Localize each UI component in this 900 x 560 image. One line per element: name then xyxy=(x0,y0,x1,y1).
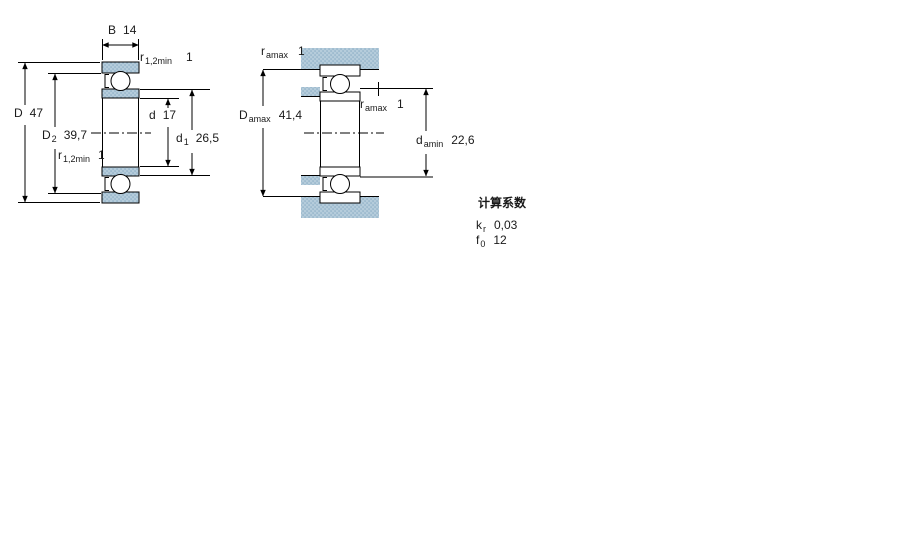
dim-label-Da-max: Damax41,4 xyxy=(239,109,302,123)
calculation-factors-title-text: 计算系数 xyxy=(478,196,526,210)
dim-subscript: amax xyxy=(249,114,271,124)
dim-symbol: D xyxy=(14,106,23,120)
dim-label-da-min: damin22,6 xyxy=(416,134,475,148)
dim-subscript: amax xyxy=(365,103,387,113)
right-mounting-figure xyxy=(263,48,433,218)
dim-value: 26,5 xyxy=(196,131,219,145)
dim-symbol: r xyxy=(140,50,144,64)
dim-label-d1: d126,5 xyxy=(176,132,219,146)
dim-value: 41,4 xyxy=(279,108,302,122)
dim-subscript: 1,2min xyxy=(145,56,172,66)
dim-subscript: amin xyxy=(424,139,444,149)
dim-label-chamfer-r-top: r1,2min1 xyxy=(140,51,193,65)
calculation-factors-title: 计算系数 xyxy=(478,197,526,210)
dim-symbol: r xyxy=(360,97,364,111)
dim-value: 1 xyxy=(397,97,404,111)
dim-symbol: B xyxy=(108,23,116,37)
dim-value: 14 xyxy=(123,23,136,37)
factor-row-f0: f012 xyxy=(476,234,507,248)
dim-symbol: d xyxy=(149,108,156,122)
dim-value: 1 xyxy=(298,44,305,58)
factor-symbol: k xyxy=(476,218,482,232)
bearing-shield-right-bottom xyxy=(323,178,327,191)
bearing-dimension-drawing: B14 r1,2min1 D47 D239,7 d17 d126,5 r1,2m… xyxy=(0,0,900,560)
dim-subscript: 1 xyxy=(184,137,189,147)
dim-label-chamfer-r-bottom: r1,2min1 xyxy=(58,149,105,163)
dim-subscript: amax xyxy=(266,50,288,60)
dim-value: 47 xyxy=(30,106,43,120)
dim-value: 22,6 xyxy=(451,133,474,147)
dim-subscript: 1,2min xyxy=(63,154,90,164)
dim-label-D2: D239,7 xyxy=(42,129,87,143)
dim-value: 39,7 xyxy=(64,128,87,142)
dim-symbol: r xyxy=(58,148,62,162)
dim-value: 17 xyxy=(163,108,176,122)
dim-value: 1 xyxy=(186,50,193,64)
dim-symbol: d xyxy=(176,131,183,145)
dim-symbol: d xyxy=(416,133,423,147)
factor-value: 12 xyxy=(493,233,506,247)
mounted-bearing-section xyxy=(320,65,360,203)
dim-label-fillet-ra-mid: ramax1 xyxy=(360,98,404,112)
drawing-linework xyxy=(0,0,900,560)
housing-shoulder-top xyxy=(301,87,320,97)
dim-symbol: D xyxy=(42,128,51,142)
dim-label-outer-diameter-D: D47 xyxy=(14,107,43,120)
shaft-shoulder-bottom xyxy=(301,175,320,185)
dim-label-bore-diameter-d: d17 xyxy=(149,109,176,122)
dim-label-width-B: B14 xyxy=(108,24,136,37)
dim-label-fillet-ra-top: ramax1 xyxy=(261,45,305,59)
dim-value: 1 xyxy=(98,148,105,162)
dim-subscript: 2 xyxy=(52,134,57,144)
bearing-shield-right-top xyxy=(323,78,327,91)
factor-symbol: f xyxy=(476,233,479,247)
dim-symbol: r xyxy=(261,44,265,58)
factor-subscript: 0 xyxy=(480,239,485,249)
factor-value: 0,03 xyxy=(494,218,517,232)
factor-row-kr: kr0,03 xyxy=(476,219,517,233)
factor-subscript: r xyxy=(483,224,486,234)
dim-symbol: D xyxy=(239,108,248,122)
